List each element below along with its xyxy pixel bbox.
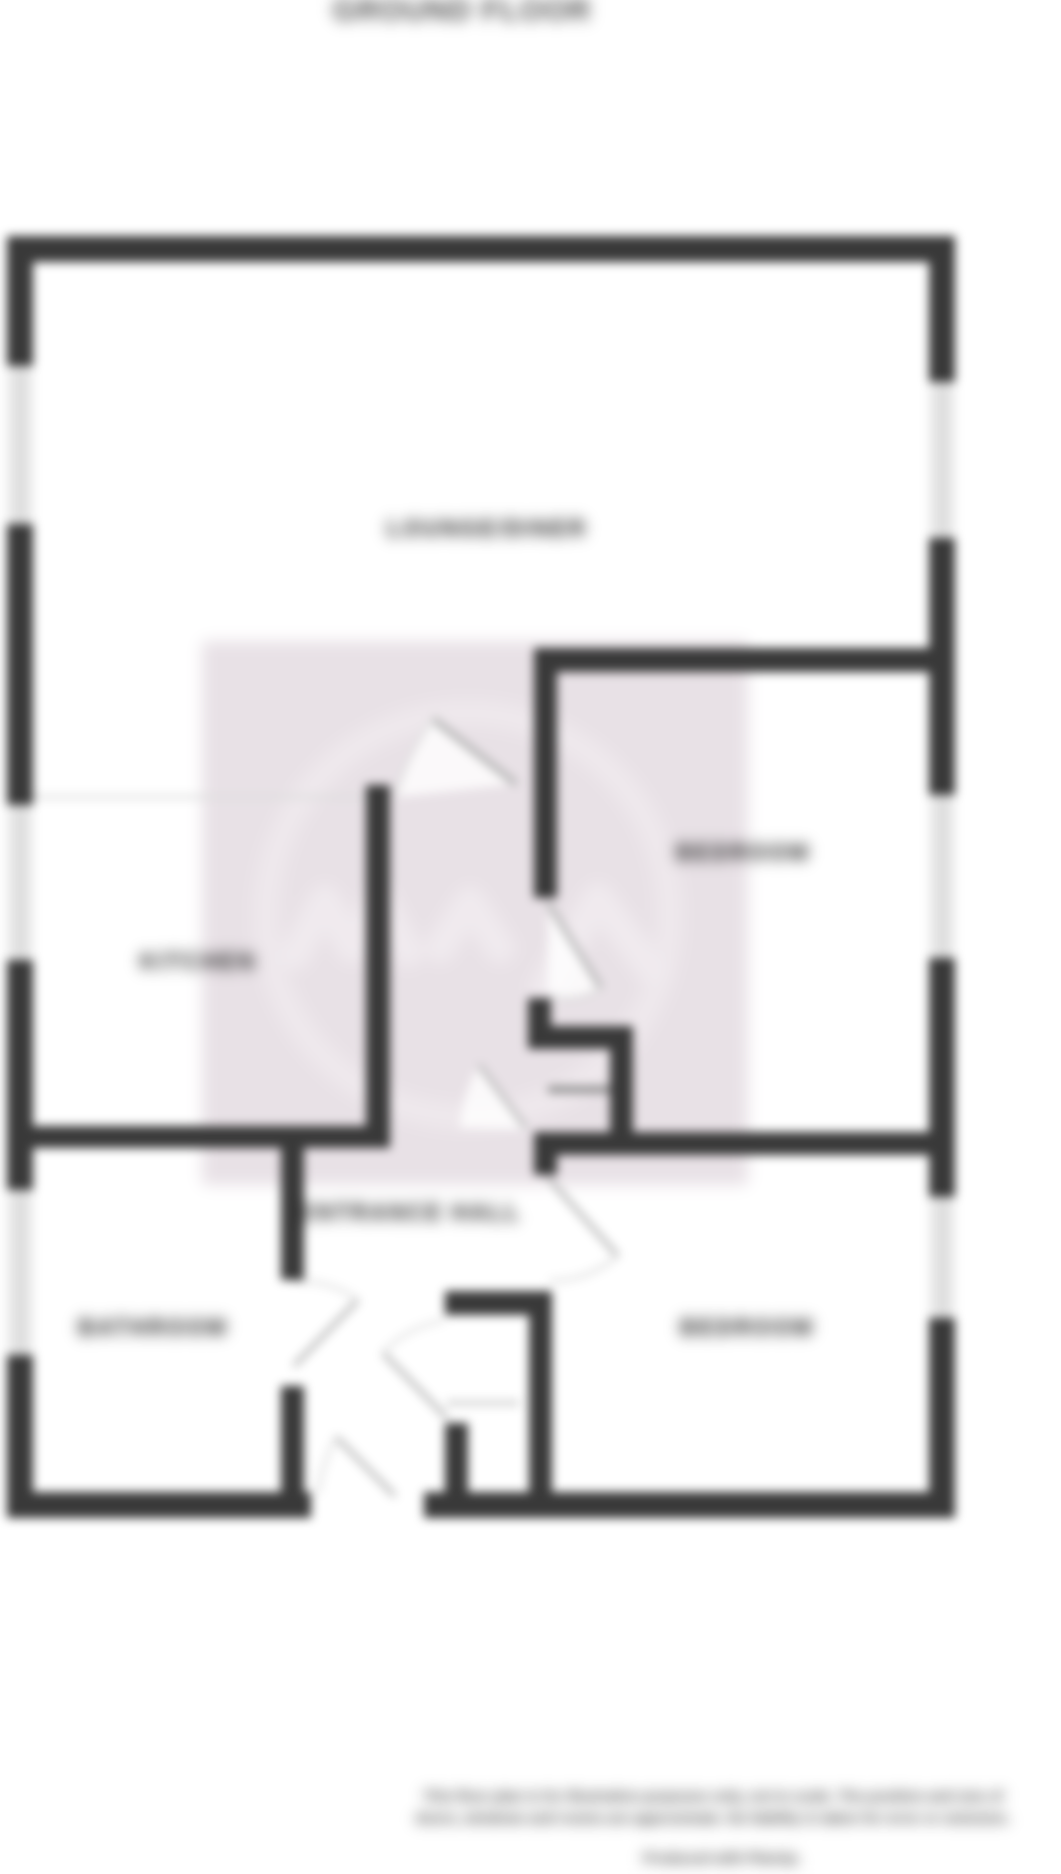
- svg-text:doors, windows and rooms are a: doors, windows and rooms are approximate…: [416, 1811, 1011, 1827]
- svg-text:LOUNGE/DINER: LOUNGE/DINER: [387, 515, 587, 541]
- svg-text:ENTRANCE HALL: ENTRANCE HALL: [299, 1199, 521, 1225]
- svg-text:This floor plan is for illustr: This floor plan is for illustrative purp…: [423, 1789, 1003, 1805]
- svg-text:BEDROOM: BEDROOM: [680, 1314, 814, 1340]
- svg-text:BEDROOM: BEDROOM: [676, 839, 810, 865]
- svg-text:KITCHEN: KITCHEN: [140, 948, 256, 974]
- svg-text:BATHROOM: BATHROOM: [78, 1314, 228, 1340]
- svg-text:GROUND FLOOR: GROUND FLOOR: [333, 0, 592, 27]
- svg-text:Produced with PlanUp.: Produced with PlanUp.: [643, 1851, 801, 1867]
